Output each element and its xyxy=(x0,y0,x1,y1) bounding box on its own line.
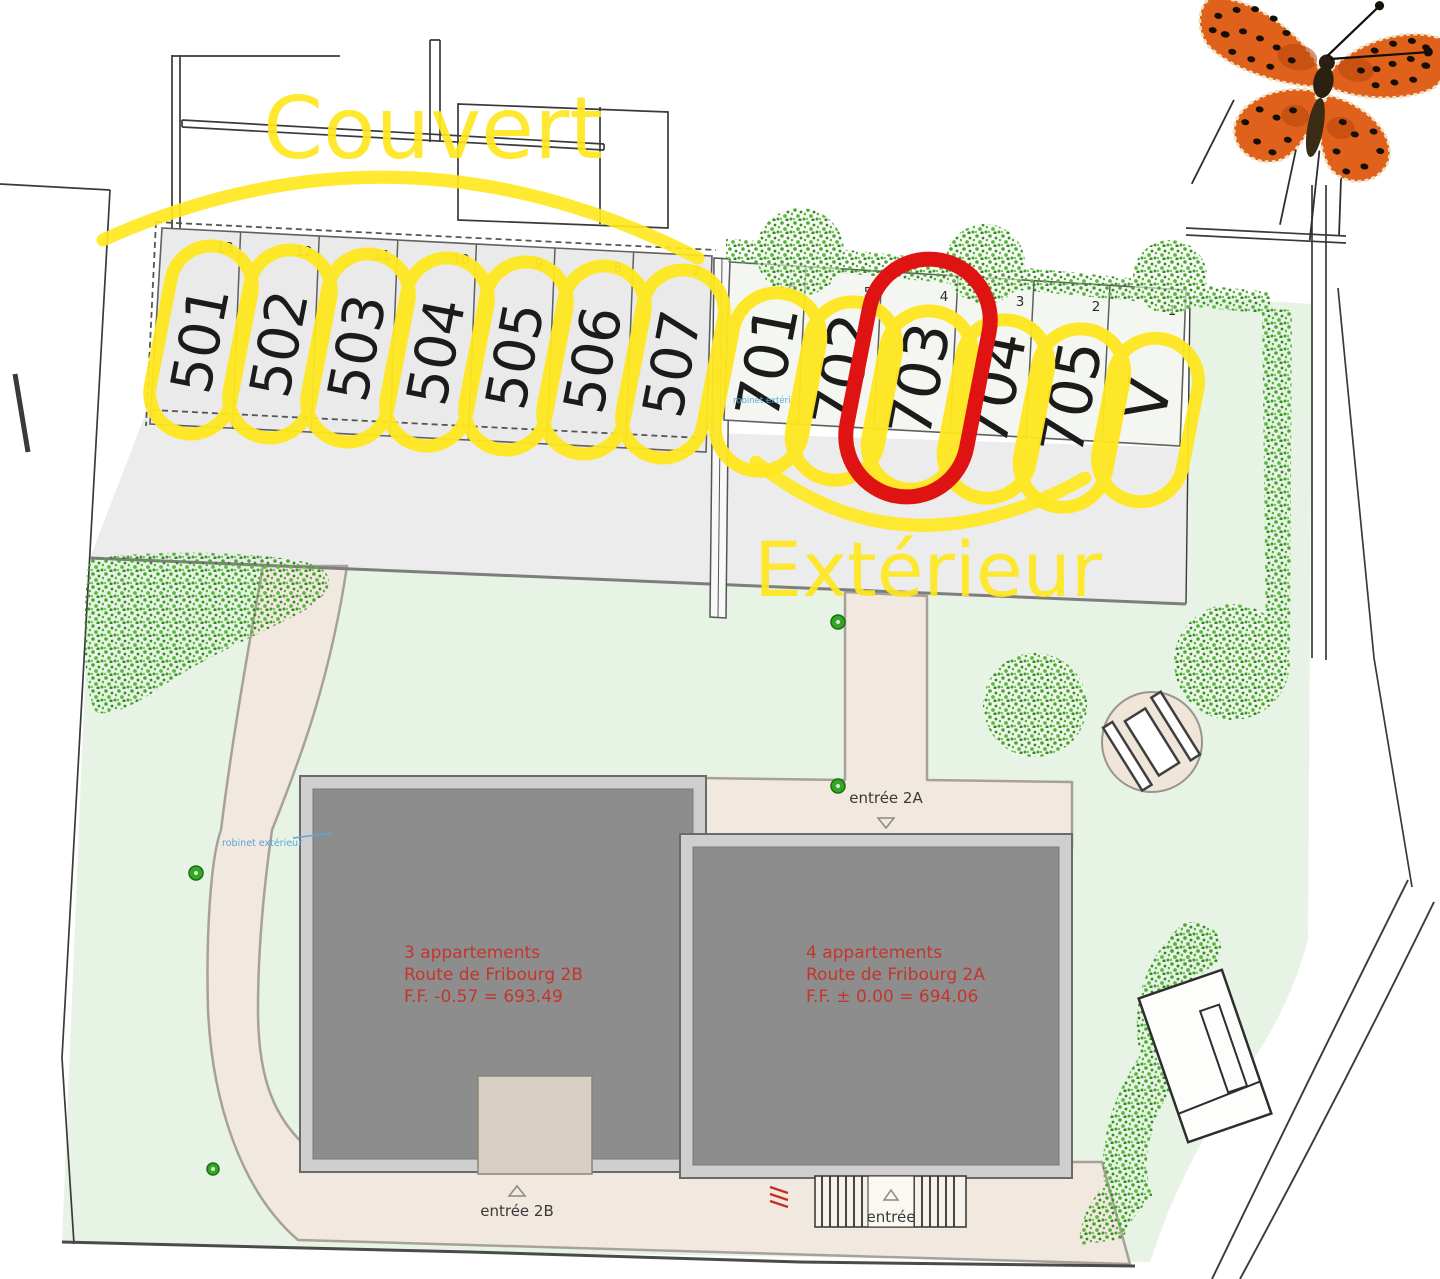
butterfly-image xyxy=(1165,0,1440,259)
entrance-2b-porch xyxy=(478,1076,592,1174)
building-2b-line1: 3 appartements xyxy=(404,943,540,963)
patio-area xyxy=(1102,692,1202,792)
building-2a-line2: Route de Fribourg 2A xyxy=(806,965,985,985)
hedge-right-strip xyxy=(1262,308,1292,652)
main-entrance-label: entrée xyxy=(867,1208,916,1226)
tap-label-left: robinet extérieur xyxy=(222,838,302,849)
exterior-zone-text: Extérieur xyxy=(754,525,1103,614)
building-2a-line1: 4 appartements xyxy=(806,943,942,963)
bay-number: 3 xyxy=(1016,294,1025,310)
tree xyxy=(756,208,844,296)
tree xyxy=(1174,604,1290,720)
covered-zone-text: Couvert xyxy=(263,79,603,179)
tree xyxy=(1133,240,1207,314)
entrance-2b-label: entrée 2B xyxy=(480,1202,554,1220)
hedge-blob xyxy=(1169,922,1221,974)
building-2b-line2: Route de Fribourg 2B xyxy=(404,965,583,985)
tree xyxy=(983,653,1087,757)
bay-number: 2 xyxy=(1092,299,1101,315)
bay-number: 4 xyxy=(940,289,949,305)
building-2a-line3: F.F. ± 0.00 = 694.06 xyxy=(806,987,978,1007)
entrance-2a-label: entrée 2A xyxy=(849,789,923,807)
building-2b-line3: F.F. -0.57 = 693.49 xyxy=(404,987,563,1007)
site-plan-drawing: 13 12 11 10 9 8 7 501 502 503 504 505 50… xyxy=(0,0,1440,1279)
site-plan-page: 13 12 11 10 9 8 7 501 502 503 504 505 50… xyxy=(0,0,1440,1279)
